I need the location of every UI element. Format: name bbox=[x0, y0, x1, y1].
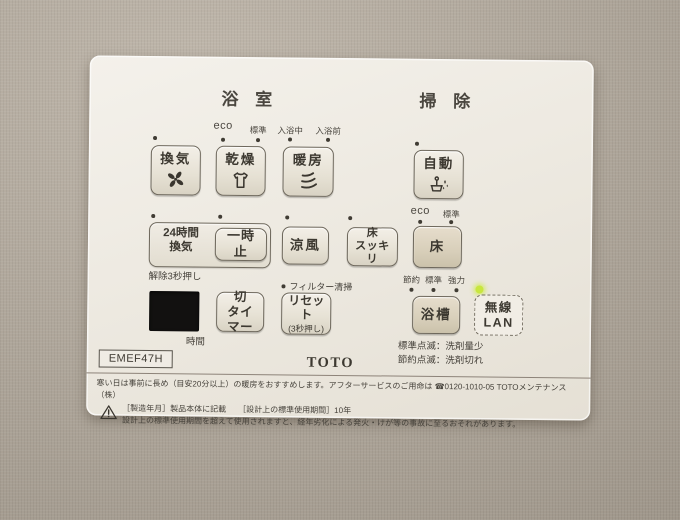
vent24-plate: 24時間 換気 一時止 bbox=[149, 222, 271, 268]
vent-button[interactable]: 換気 bbox=[150, 145, 201, 196]
led-power-strong bbox=[454, 288, 458, 292]
label-power-save: 節約 bbox=[403, 274, 420, 286]
heat-button-label: 暖房 bbox=[293, 153, 324, 170]
label-heat-bathing: 入浴中 bbox=[277, 124, 303, 136]
off-timer-button[interactable]: 切 タイマー bbox=[216, 292, 264, 333]
label-power-strong: 強力 bbox=[448, 274, 465, 286]
off-timer-button-label: 切 タイマー bbox=[223, 289, 257, 334]
bathtub-clean-button[interactable]: 浴槽 bbox=[412, 296, 460, 335]
label-dry-eco: eco bbox=[213, 120, 232, 132]
toto-logo: TOTO bbox=[307, 355, 355, 372]
wireless-lan-button-label: 無線 LAN bbox=[483, 300, 514, 330]
fan-icon bbox=[165, 169, 187, 189]
led-heat-bathing bbox=[288, 137, 292, 141]
fine-print-area: 寒い日は事前に長め（目安20分以上）の暖房をおすすめします。アフターサービスのご… bbox=[86, 372, 590, 420]
cool-breeze-button[interactable]: 涼風 bbox=[282, 226, 329, 264]
filter-clean-label: フィルター清掃 bbox=[289, 279, 352, 293]
dry-button[interactable]: 乾燥 bbox=[215, 146, 266, 197]
led-vent24 bbox=[151, 214, 155, 218]
led-pause bbox=[218, 215, 222, 219]
cool-breeze-button-label: 涼風 bbox=[290, 237, 321, 254]
heatwave-icon bbox=[296, 170, 320, 190]
shirt-icon bbox=[230, 169, 252, 189]
wireless-lan-button[interactable]: 無線 LAN bbox=[474, 294, 523, 336]
photo-of-bath-control-panel: 浴 室 掃 除 eco 標準 入浴中 入浴前 換気 bbox=[0, 0, 680, 520]
led-filter-clean bbox=[281, 284, 285, 288]
led-power-save bbox=[409, 288, 413, 292]
label-autofloor-eco: eco bbox=[411, 205, 430, 217]
vent24-release-note: 解除3秒押し bbox=[149, 268, 202, 283]
toto-bathroom-control-panel: 浴 室 掃 除 eco 標準 入浴中 入浴前 換気 bbox=[86, 55, 594, 420]
fine-print-line1: 寒い日は事前に長め（目安20分以上）の暖房をおすすめします。アフターサービスのご… bbox=[96, 377, 580, 406]
timer-display bbox=[149, 291, 199, 332]
led-floor-eco bbox=[418, 220, 422, 224]
led-cool bbox=[285, 215, 289, 219]
note-save-blink: 節約点滅：洗剤切れ bbox=[398, 352, 484, 367]
autoclean-icon bbox=[427, 174, 449, 193]
vent24-label: 24時間 換気 bbox=[152, 226, 210, 255]
label-heat-prebath: 入浴前 bbox=[315, 125, 341, 137]
led-dry-eco bbox=[221, 138, 225, 142]
led-heat-prebath bbox=[326, 138, 330, 142]
reset-button-sublabel: (3秒押し) bbox=[288, 323, 324, 334]
dry-button-label: 乾燥 bbox=[225, 152, 256, 169]
bathtub-clean-button-label: 浴槽 bbox=[421, 307, 452, 324]
led-dry-standard bbox=[256, 138, 260, 142]
pause-button[interactable]: 一時止 bbox=[215, 227, 267, 261]
led-vent bbox=[153, 136, 157, 140]
pause-button-label: 一時止 bbox=[222, 228, 260, 260]
floor-dry-button[interactable]: 床 スッキリ bbox=[347, 227, 398, 267]
wlan-status-led bbox=[475, 285, 483, 293]
section-title-cleaning: 掃 除 bbox=[419, 87, 476, 113]
auto-clean-button-label: 自動 bbox=[423, 156, 454, 173]
floor-dry-button-label: 床 スッキリ bbox=[354, 227, 391, 267]
vent-button-label: 換気 bbox=[160, 152, 191, 169]
model-number-badge: EMEF47H bbox=[99, 349, 173, 368]
led-floor-dry bbox=[348, 216, 352, 220]
led-power-standard bbox=[431, 288, 435, 292]
led-auto bbox=[415, 142, 419, 146]
label-dry-standard: 標準 bbox=[250, 124, 267, 136]
auto-clean-button[interactable]: 自動 bbox=[413, 150, 464, 200]
label-autofloor-standard: 標準 bbox=[443, 208, 460, 220]
section-title-bathroom: 浴 室 bbox=[221, 85, 278, 111]
reset-button[interactable]: リセット (3秒押し) bbox=[281, 292, 331, 335]
note-standard-blink: 標準点滅：洗剤量少 bbox=[398, 338, 484, 353]
floor-clean-button-label: 床 bbox=[430, 239, 446, 255]
reset-button-label: リセット bbox=[288, 293, 324, 322]
heat-button[interactable]: 暖房 bbox=[282, 146, 334, 197]
label-power-standard: 標準 bbox=[425, 274, 442, 286]
led-floor-standard bbox=[449, 220, 453, 224]
warning-icon bbox=[100, 404, 117, 419]
timer-unit-label: 時間 bbox=[186, 333, 205, 347]
floor-clean-button[interactable]: 床 bbox=[413, 226, 462, 269]
